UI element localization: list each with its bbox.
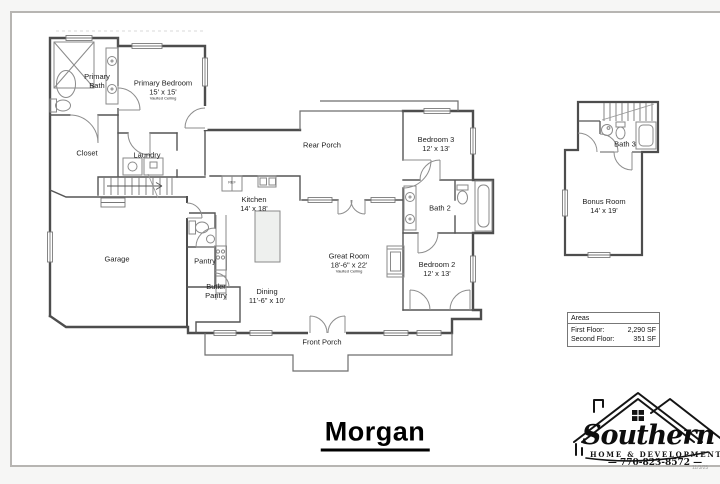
room-label-bath-2: Bath 2 (429, 204, 451, 213)
plan-title: Morgan (321, 417, 430, 452)
areas-row-value: 351 SF (633, 335, 656, 344)
bath3-tub (636, 122, 656, 149)
room-label-rear-porch: Rear Porch (303, 141, 341, 150)
bath3-toilet (616, 122, 625, 139)
areas-row-label: Second Floor: (571, 335, 615, 344)
areas-row-first-floor: First Floor: 2,290 SF (568, 326, 659, 335)
room-label-pantry: Pantry (194, 257, 216, 266)
room-label-dining: Dining11'-6" x 10' (249, 287, 285, 305)
room-label-closet: Closet (76, 149, 97, 158)
plan-sheet-page: { "page": { "plan_title": "Morgan", "dat… (0, 0, 720, 484)
powder-toilet (189, 221, 215, 243)
room-label-butler-pantry: Butler Pantry (201, 282, 231, 300)
room-label-primary-bath: Primary Bath (79, 72, 115, 90)
bath2-tub (475, 181, 492, 231)
kitchen-island (255, 211, 280, 262)
staircase (101, 174, 172, 207)
room-label-bonus-room: Bonus Room14' x 19' (582, 197, 625, 215)
areas-table-rows: First Floor: 2,290 SF Second Floor: 351 … (568, 324, 659, 346)
kitchen-sink (258, 176, 276, 187)
areas-row-value: 2,290 SF (628, 326, 656, 335)
bonus-stairs (602, 103, 654, 121)
second-floor-plan (563, 102, 659, 258)
washer-dryer (123, 158, 163, 175)
fireplace-symbol (387, 246, 404, 277)
room-label-bath-3: Bath 3 (614, 140, 636, 149)
room-label-garage: Garage (104, 255, 129, 264)
toilet-symbol (50, 99, 71, 112)
room-label-front-porch: Front Porch (302, 338, 341, 347)
builder-logo-name: Southern Ridge (582, 420, 720, 451)
areas-row-label: First Floor: (571, 326, 604, 335)
room-label-laundry: Laundry (133, 151, 160, 160)
areas-row-second-floor: Second Floor: 351 SF (568, 335, 659, 344)
room-label-kitchen: Kitchen14' x 18' (240, 195, 267, 213)
ref-label: REF (228, 181, 236, 186)
room-label-bedroom-3: Bedroom 312' x 13' (418, 135, 455, 153)
room-label-bedroom-2: Bedroom 212' x 13' (419, 260, 456, 278)
room-label-primary-bedroom: Primary Bedroom15' x 15'Vaulted Ceiling (134, 79, 192, 102)
bath3-sink (602, 125, 613, 136)
bath2-toilet (457, 185, 468, 204)
date-stamp: 11/3/25 (692, 465, 708, 471)
room-label-great-room: Great Room18'-6" x 22'Vaulted Ceiling (329, 252, 370, 275)
bath2-vanity (404, 186, 416, 230)
areas-table: Areas First Floor: 2,290 SF Second Floor… (567, 312, 660, 347)
areas-table-header: Areas (568, 313, 659, 324)
